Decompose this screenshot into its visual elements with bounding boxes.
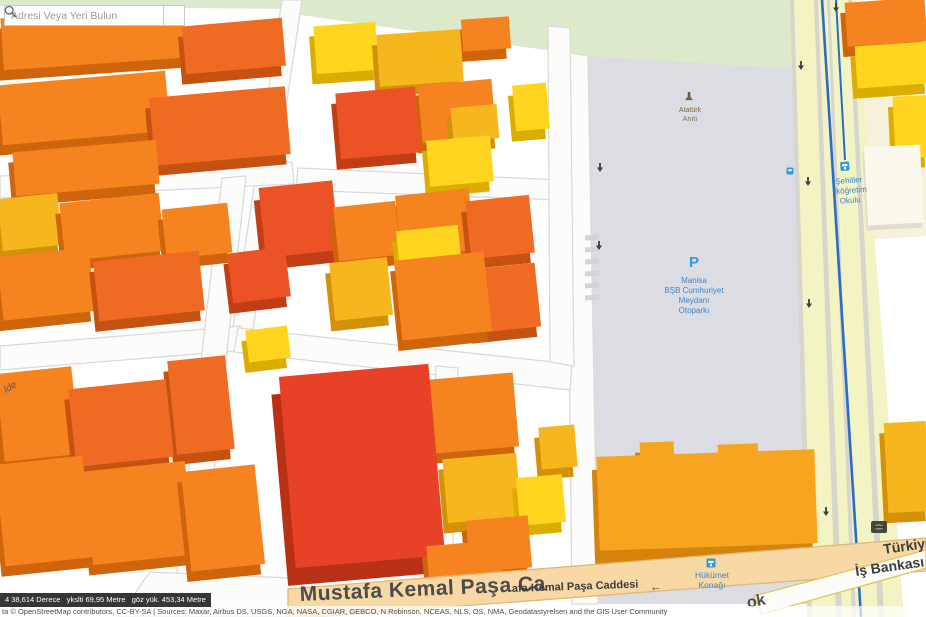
- building: [222, 247, 292, 314]
- search-icon: [4, 5, 17, 18]
- poi-label: Hükümet: [695, 570, 730, 580]
- poi-label: Okulu: [839, 195, 860, 205]
- building: [862, 145, 924, 231]
- building: [240, 326, 292, 373]
- poi-label: BŞB Cumhuriyet: [664, 286, 724, 295]
- coordinate-status-bar: 4 38,614 Derece ykslti 69,95 Metre göz y…: [0, 593, 211, 607]
- building: [308, 22, 379, 85]
- building: [270, 364, 447, 586]
- building: [176, 464, 266, 582]
- bank-icon: [871, 521, 887, 533]
- building: [424, 372, 520, 463]
- map-attribution: ta © OpenStreetMap contributors, CC-BY-S…: [0, 606, 926, 617]
- poi-label: Şehitler: [835, 175, 863, 186]
- poi-label: Meydanı: [679, 296, 710, 305]
- poi-label: Otoparkı: [679, 306, 710, 315]
- street-direction-arrow: ←: [650, 580, 662, 594]
- building: [533, 425, 578, 480]
- building: [591, 449, 818, 564]
- bus-stop-icon: [787, 168, 794, 175]
- poi-label: Manisa: [681, 276, 707, 285]
- poi-label: Anıtı: [683, 116, 697, 123]
- poi-label: Konağı: [699, 580, 726, 590]
- map-canvas[interactable]: AtatürkAnıtıPManisaBŞB CumhuriyetMeydanı…: [0, 0, 926, 617]
- search-button[interactable]: [164, 5, 185, 26]
- building: [850, 42, 926, 99]
- school-icon: [840, 161, 850, 171]
- building: [88, 251, 206, 332]
- building: [144, 86, 291, 176]
- poi-bus-stop[interactable]: [787, 168, 794, 175]
- search-input[interactable]: [4, 5, 164, 26]
- scene-viewer: AtatürkAnıtıPManisaBŞB CumhuriyetMeydanı…: [0, 0, 926, 617]
- building: [507, 83, 551, 142]
- building: [421, 135, 495, 197]
- crosswalk-stripe: [585, 261, 599, 262]
- poi-label: Atatürk: [679, 107, 702, 114]
- crosswalk-stripe: [585, 237, 599, 238]
- crosswalk-stripe: [585, 297, 599, 298]
- building: [162, 355, 236, 465]
- crosswalk-stripe: [585, 273, 599, 274]
- building: [456, 16, 512, 62]
- building: [324, 257, 394, 331]
- parking-icon: P: [689, 254, 699, 271]
- building: [78, 461, 195, 576]
- building: [879, 421, 926, 523]
- poi-is-bankasi-atm[interactable]: [871, 521, 887, 533]
- government-icon: [707, 559, 716, 568]
- building: [0, 247, 96, 331]
- road-center-east-vertical: [548, 26, 574, 366]
- search-widget: [4, 5, 185, 26]
- svg-text:P: P: [689, 254, 699, 271]
- crosswalk-stripe: [585, 249, 599, 250]
- building: [330, 87, 421, 170]
- building: [389, 252, 493, 351]
- building: [0, 456, 94, 577]
- building: [177, 18, 287, 85]
- crosswalk-stripe: [585, 285, 599, 286]
